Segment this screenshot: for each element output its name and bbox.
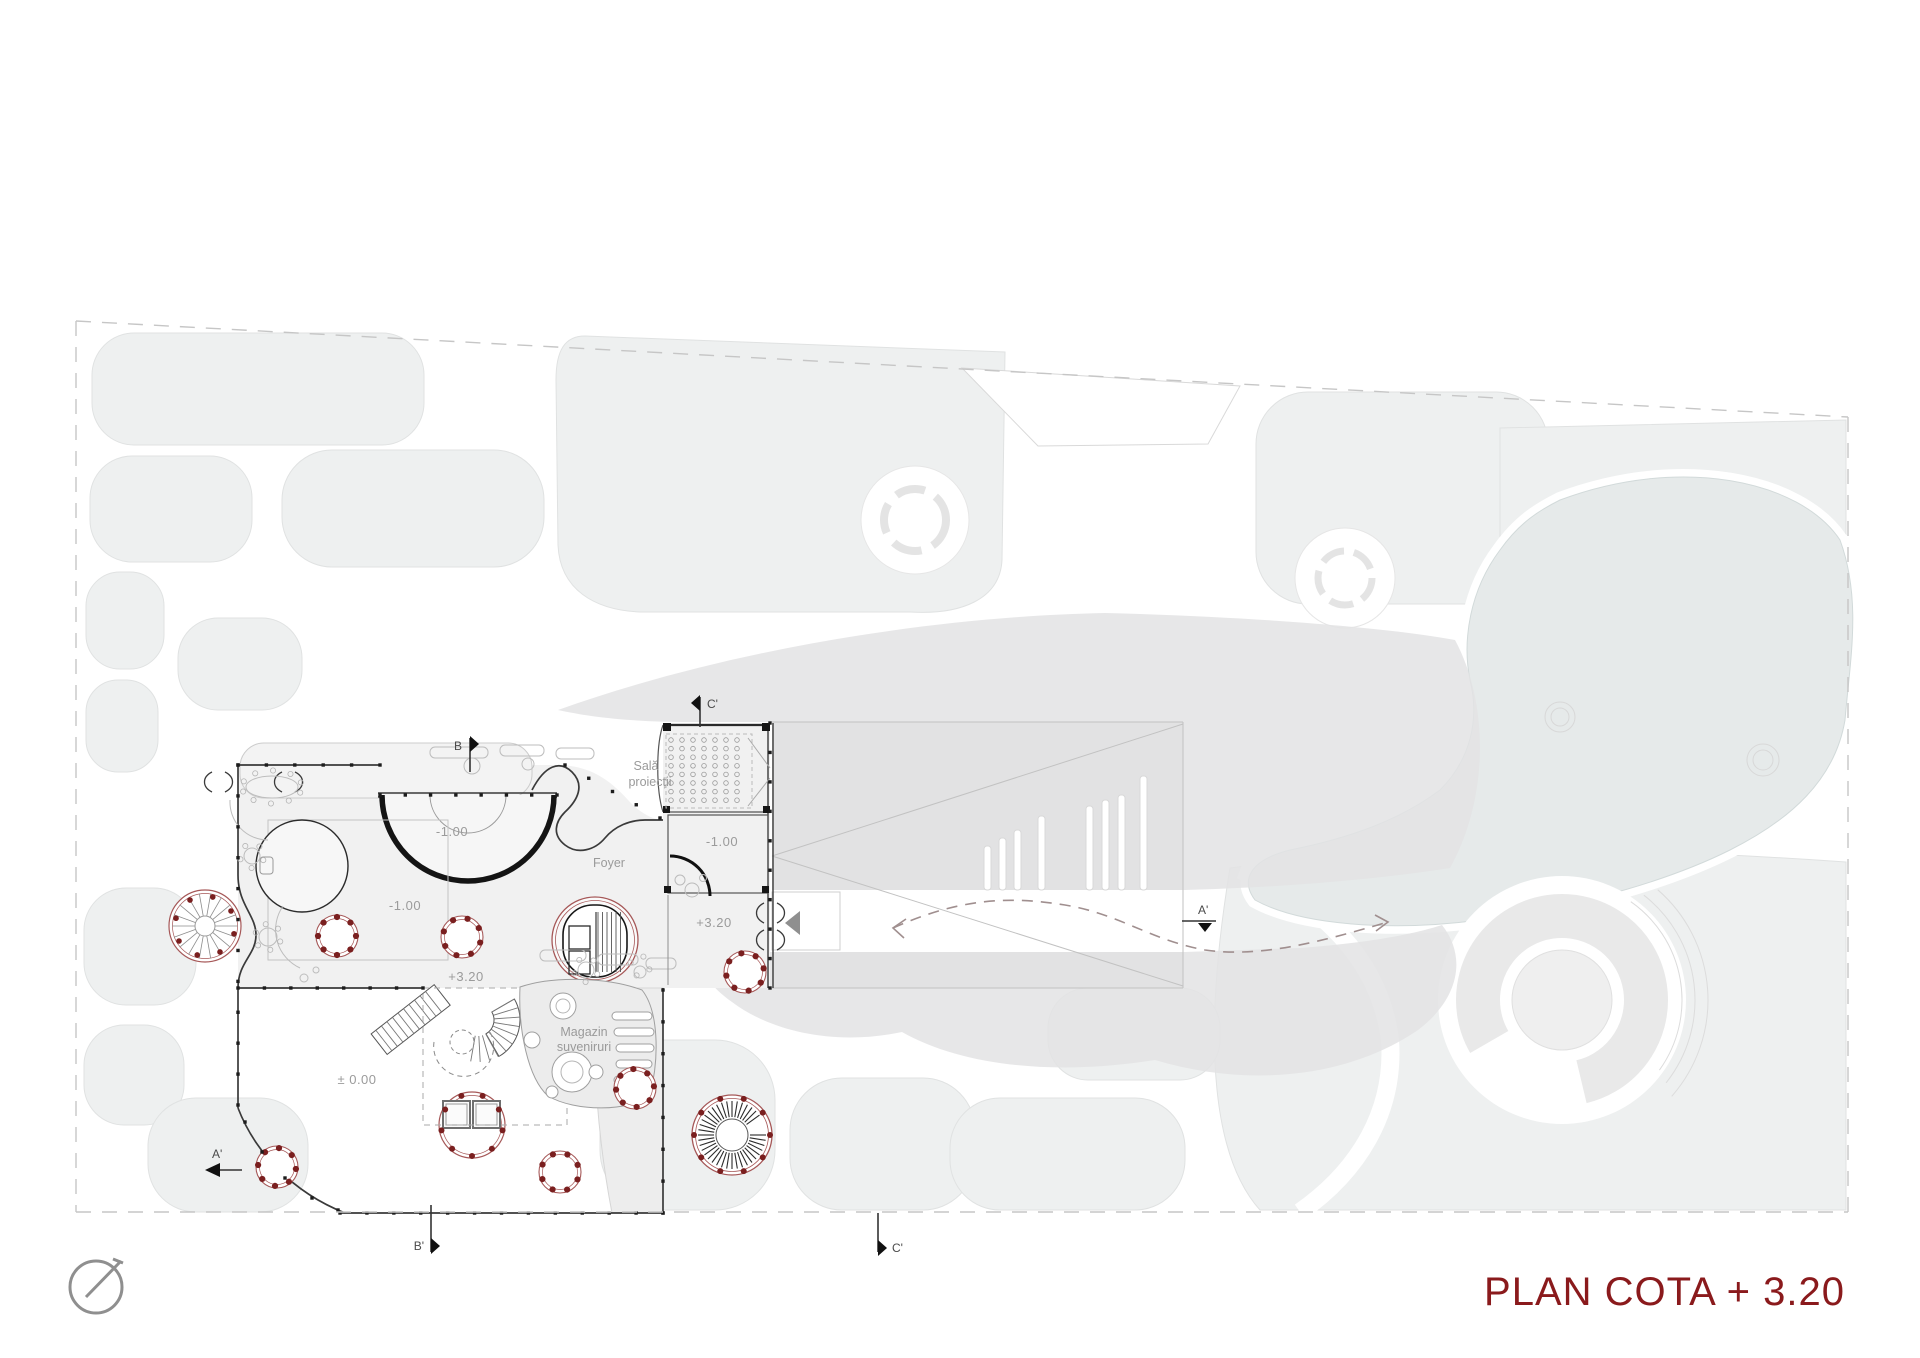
red-table xyxy=(441,916,484,959)
level-label-foyer-east: +3.20 xyxy=(696,915,731,930)
level-label-amphitheater: -1.00 xyxy=(436,824,468,839)
main-stair-core xyxy=(552,897,638,983)
red-table xyxy=(315,914,359,958)
entrance-platform xyxy=(772,892,840,950)
spiral-stair xyxy=(371,985,535,1077)
red-table xyxy=(539,1151,581,1193)
svg-text:C': C' xyxy=(892,1241,903,1255)
room-label-foyer: Foyer xyxy=(593,856,625,870)
section-marker-a-right: A' xyxy=(1182,903,1216,932)
north-arrow-icon xyxy=(70,1259,123,1313)
circular-meeting-room xyxy=(256,820,348,912)
sheet-title: PLAN COTA + 3.20 xyxy=(1484,1270,1845,1314)
svg-text:B: B xyxy=(454,739,462,753)
room-label-magazin-2: suveniruri xyxy=(557,1040,611,1054)
svg-text:C': C' xyxy=(707,697,718,711)
level-label-terrace: ± 0.00 xyxy=(337,1072,376,1087)
spiral-ramp xyxy=(691,1095,773,1175)
title-block: PLAN COTA + 3.20 xyxy=(70,1259,1845,1314)
room-label-sala-2: proiecții xyxy=(628,775,671,789)
floor-plan-canvas: -1.00 -1.00 -1.00 +3.20 +3.20 ± 0.00 Foy… xyxy=(0,0,1920,1358)
level-label-lower-room: -1.00 xyxy=(706,834,738,849)
section-marker-c-bottom: C' xyxy=(878,1213,903,1256)
red-table xyxy=(723,950,767,994)
room-label-magazin-1: Magazin xyxy=(560,1025,607,1039)
level-label-left-room: -1.00 xyxy=(389,898,421,913)
left-spiral-stair xyxy=(169,890,241,962)
room-label-sala-1: Sală xyxy=(633,759,658,773)
plan-sheet: -1.00 -1.00 -1.00 +3.20 +3.20 ± 0.00 Foy… xyxy=(0,0,1920,1358)
svg-text:A': A' xyxy=(1198,903,1208,917)
level-label-foyer-west: +3.20 xyxy=(448,969,483,984)
svg-text:B': B' xyxy=(414,1239,424,1253)
svg-text:A': A' xyxy=(212,1147,222,1161)
